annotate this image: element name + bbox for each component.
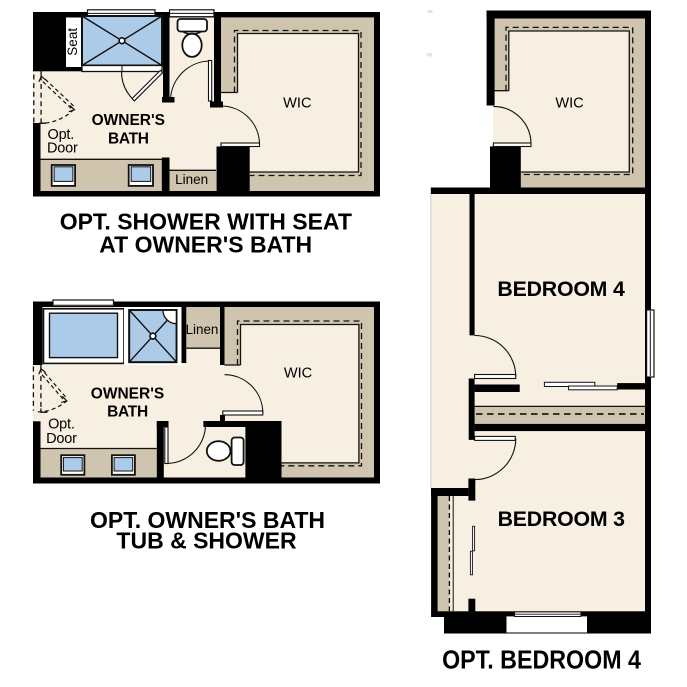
svg-text:WIC: WIC: [555, 96, 583, 112]
svg-text:OWNER'S: OWNER'S: [92, 112, 165, 129]
svg-text:Seat: Seat: [65, 28, 80, 56]
svg-text:Door: Door: [46, 431, 77, 447]
svg-text:BEDROOM 4: BEDROOM 4: [497, 277, 625, 301]
svg-text:Door: Door: [47, 141, 78, 157]
svg-text:WIC: WIC: [283, 95, 311, 111]
svg-text:WIC: WIC: [284, 365, 312, 381]
svg-text:OWNER'S: OWNER'S: [91, 385, 164, 402]
svg-text:TUB & SHOWER: TUB & SHOWER: [116, 528, 297, 554]
svg-text:Linen: Linen: [175, 172, 208, 187]
svg-text:AT OWNER'S BATH: AT OWNER'S BATH: [99, 232, 312, 258]
svg-text:BATH: BATH: [107, 404, 148, 421]
svg-text:Linen: Linen: [186, 322, 219, 337]
svg-text:OPT. BEDROOM 4: OPT. BEDROOM 4: [442, 646, 641, 674]
svg-text:BEDROOM 3: BEDROOM 3: [498, 507, 626, 531]
svg-text:BATH: BATH: [108, 131, 149, 148]
